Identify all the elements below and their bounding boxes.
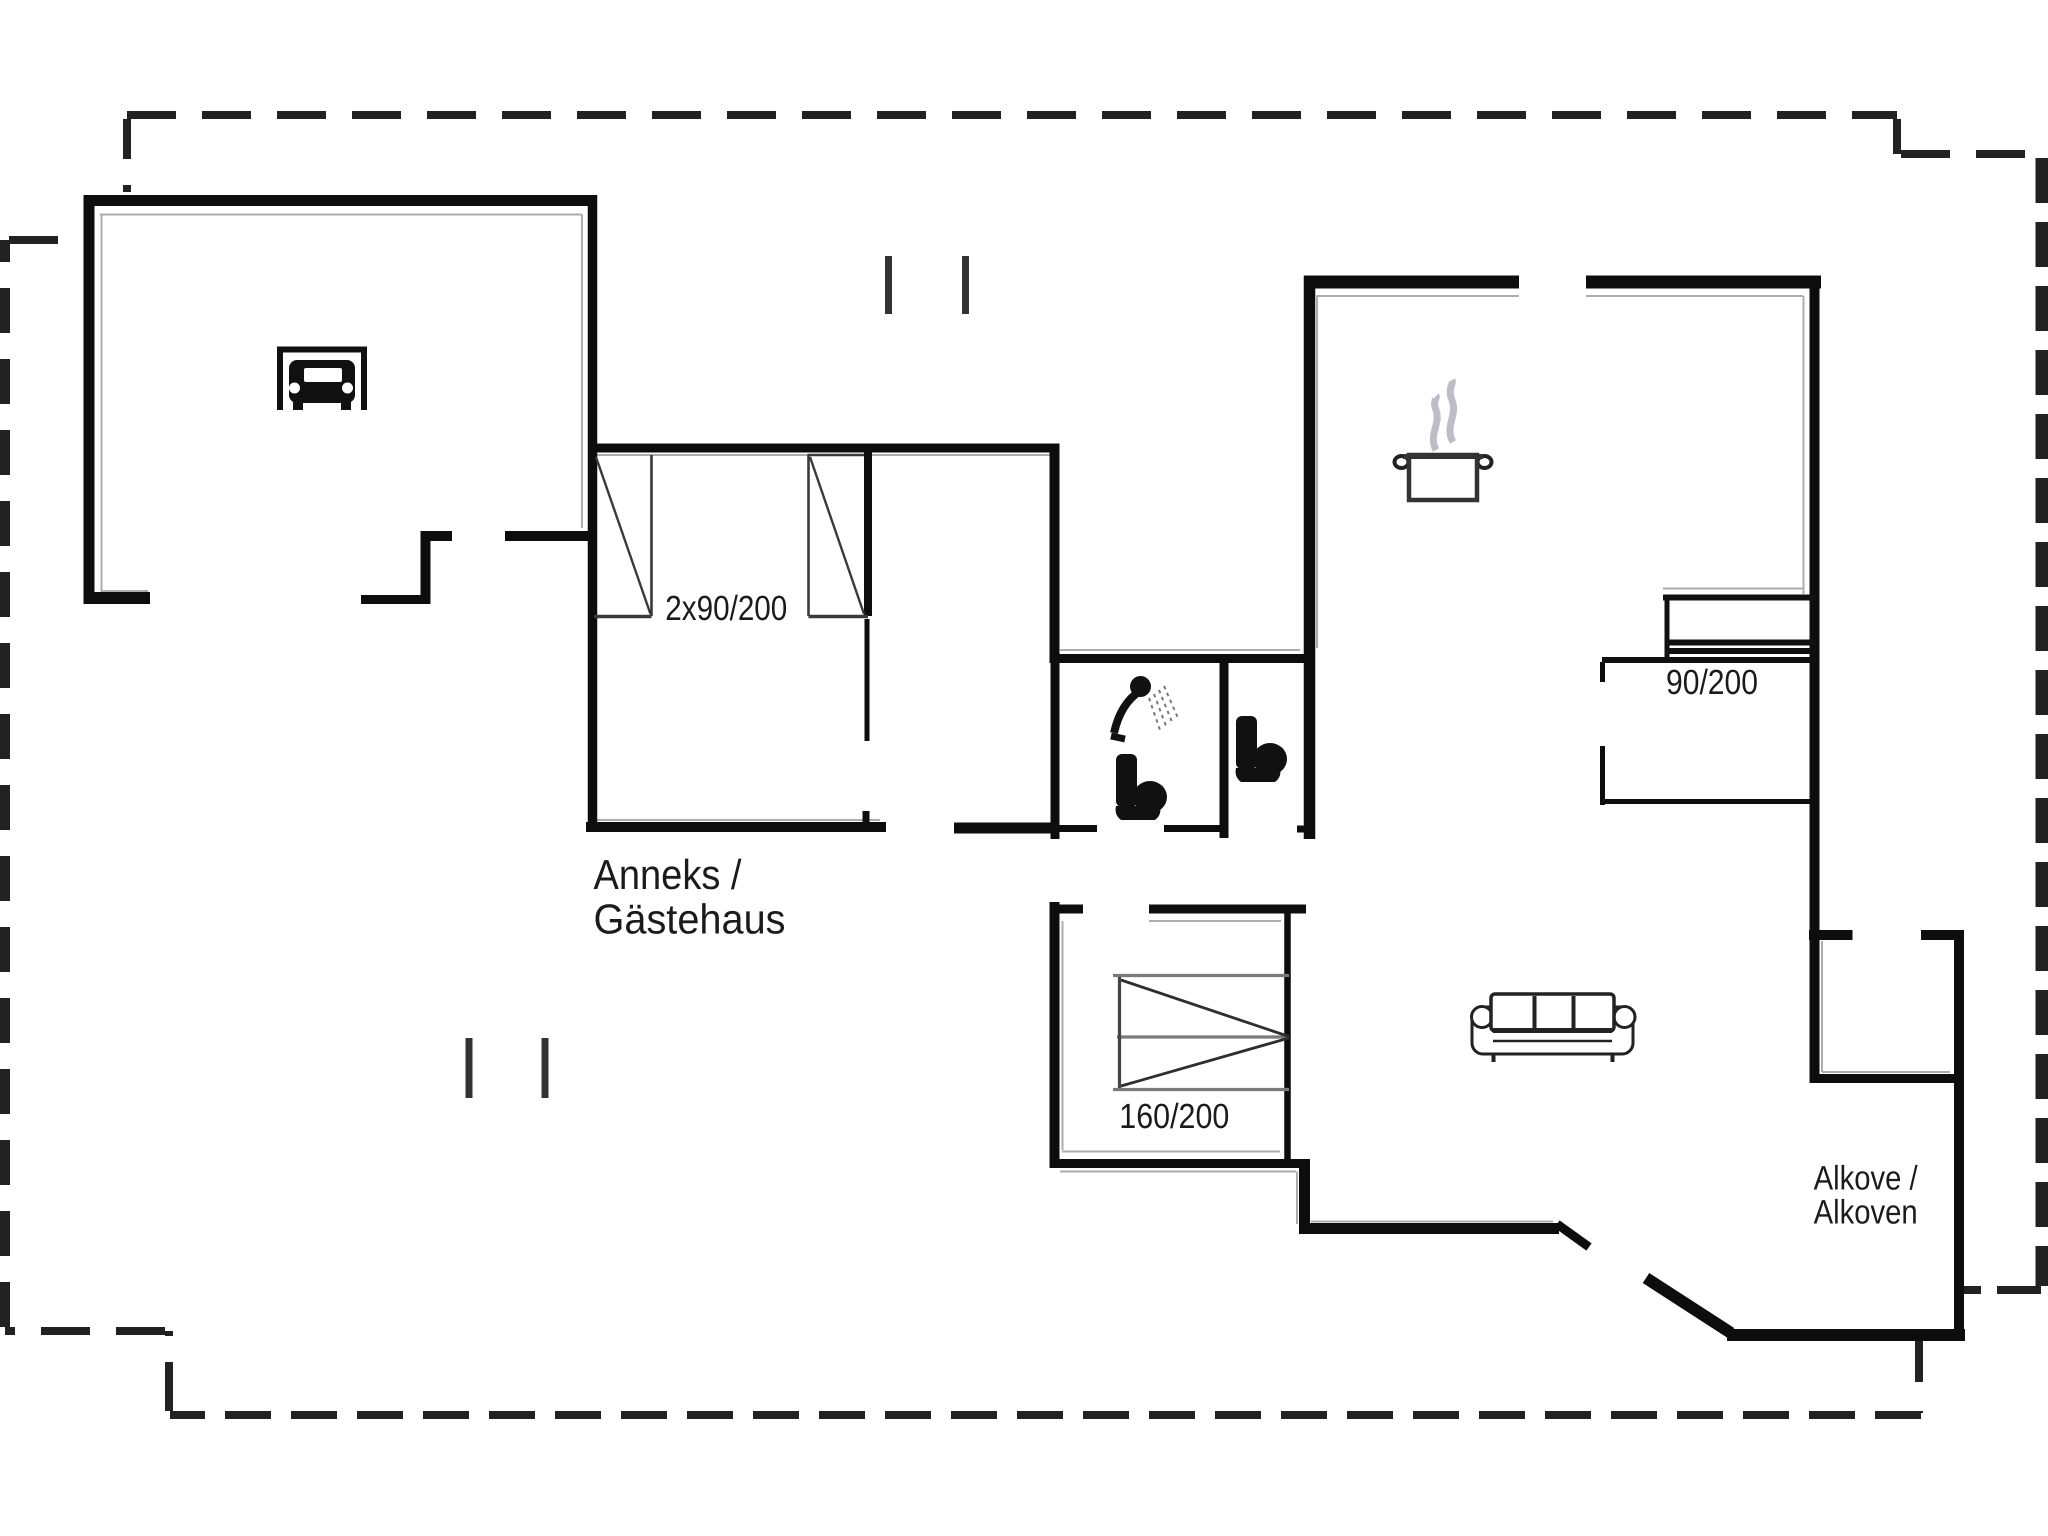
svg-text:160/200: 160/200 xyxy=(1119,1097,1229,1136)
svg-text:90/200: 90/200 xyxy=(1666,663,1758,702)
svg-text:Gästehaus: Gästehaus xyxy=(594,896,786,943)
svg-text:Alkoven: Alkoven xyxy=(1814,1193,1918,1231)
svg-text:Alkove /: Alkove / xyxy=(1814,1160,1918,1198)
svg-text:Anneks /: Anneks / xyxy=(594,851,742,898)
svg-text:2x90/200: 2x90/200 xyxy=(665,589,787,628)
